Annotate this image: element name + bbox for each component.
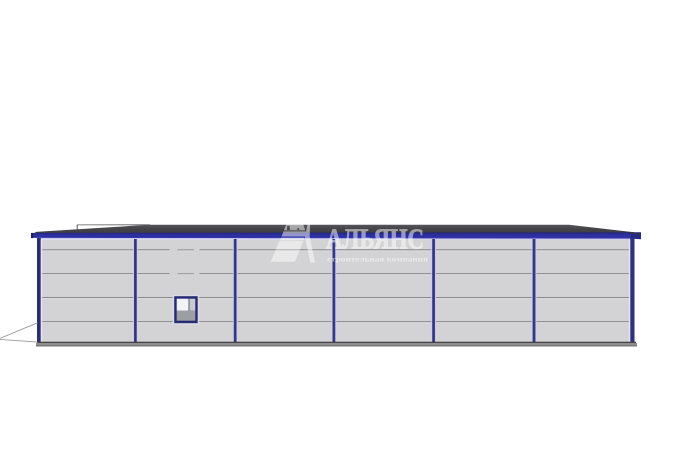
svg-text:АЛЬЯНС: АЛЬЯНС — [326, 225, 424, 256]
svg-text:строительная компания: строительная компания — [327, 254, 429, 263]
